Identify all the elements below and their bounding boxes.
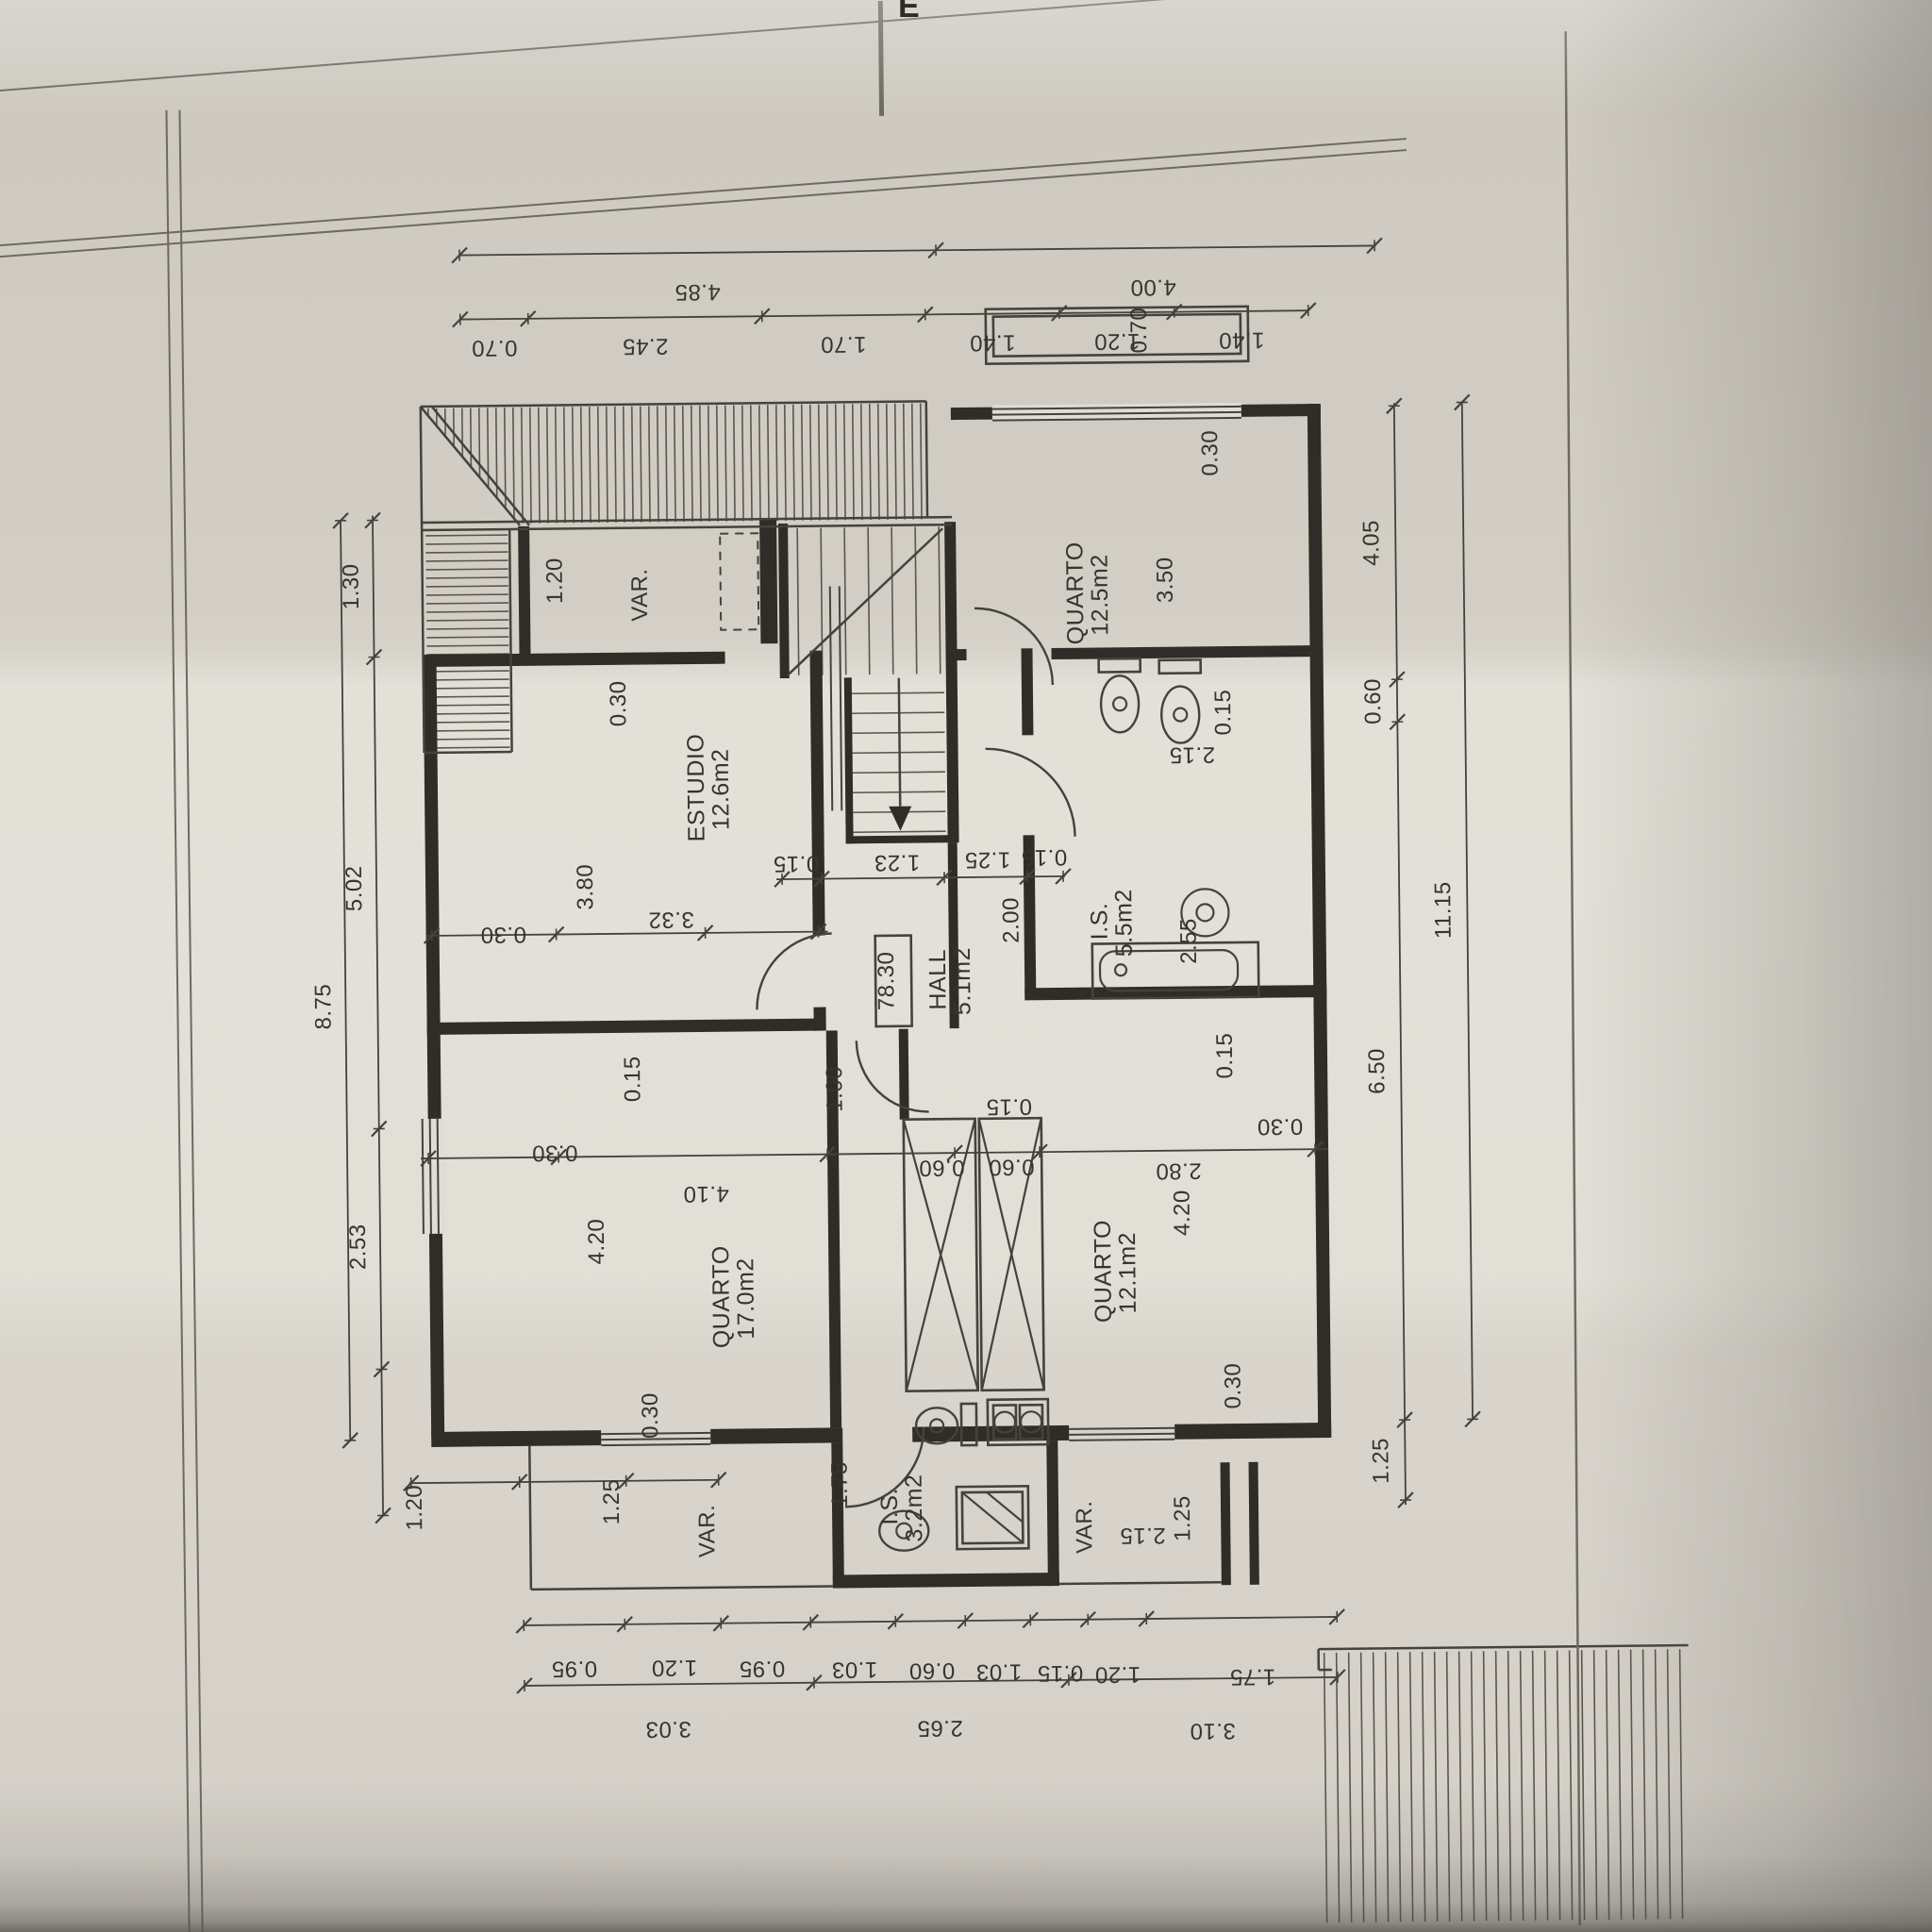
window-sill-line [438, 1119, 439, 1234]
hatch-line [649, 406, 650, 522]
hatch-line [607, 407, 608, 523]
hatch-line [590, 407, 591, 523]
dim-label: 0.95 [739, 1656, 785, 1682]
hatch-line [904, 404, 905, 520]
hatch-line [426, 569, 508, 570]
dimension-line [1462, 402, 1473, 1419]
dim-label: 1.75 [1229, 1664, 1275, 1690]
hatch-line [522, 408, 523, 524]
paper-fold-line [0, 150, 1407, 258]
room-name-label: QUARTO [1061, 541, 1089, 644]
hatch-line [426, 645, 508, 646]
dim-label: 11.15 [1430, 881, 1457, 939]
dim-label: 4.85 [675, 279, 721, 306]
dim-label: 0.15 [1212, 1033, 1239, 1079]
hatch-line [895, 404, 896, 520]
hatch-line [426, 577, 508, 578]
room-name-label: I.S. [1086, 903, 1112, 941]
hatch-line [853, 404, 854, 520]
hatch-line [615, 407, 616, 523]
plan-line [840, 586, 841, 810]
paper-fold-line [179, 110, 202, 1932]
plan-line [422, 517, 952, 523]
window-sill-line [423, 1119, 424, 1234]
stair-arrow-head [889, 807, 911, 831]
wall [1174, 1423, 1331, 1440]
window-sill-line [1069, 1428, 1174, 1429]
dim-label: 0.30 [480, 922, 526, 948]
dim-label: 2.55 [1175, 918, 1202, 964]
dimension-line [524, 1617, 1337, 1625]
hatch-line [427, 671, 509, 672]
wall [759, 519, 777, 643]
dim-label: 8.75 [310, 984, 337, 1030]
wall [1051, 645, 1309, 659]
plan-line [509, 529, 511, 752]
dim-label: 1.20 [541, 558, 568, 604]
dim-label: 1.03 [975, 1658, 1022, 1685]
dim-label: 2.53 [345, 1224, 372, 1270]
wall [1221, 1462, 1231, 1585]
hatch-line [426, 603, 508, 604]
hatch-line [479, 408, 480, 477]
dim-label: 4.10 [683, 1181, 729, 1207]
hatch-line [708, 406, 709, 522]
hatch-line [426, 594, 508, 595]
hatch-line [776, 405, 777, 521]
paper-bottom-shadow [0, 1781, 1932, 1932]
dim-label: 1.30 [338, 563, 364, 609]
dim-label: VAR. [627, 568, 654, 622]
hatch-line [427, 688, 509, 689]
dim-label: 2.80 [1156, 1158, 1202, 1184]
hatch-line [844, 527, 846, 675]
wall [431, 1430, 601, 1447]
hatch-line [854, 831, 946, 832]
wall [1249, 1462, 1259, 1585]
hatch-line [939, 526, 941, 674]
hatch-line [556, 408, 557, 524]
hatch-line [810, 405, 811, 521]
hatch-line [683, 406, 684, 522]
dim-label: 1.00 [822, 1066, 848, 1112]
dim-label: 1.20 [651, 1655, 697, 1681]
hatch-line [836, 404, 837, 520]
paper-fold-line [0, 139, 1407, 246]
dim-label: 1.03 [831, 1657, 877, 1683]
dim-label: 1.25 [1368, 1438, 1394, 1484]
sanitary-fixture [1101, 675, 1140, 732]
wall [427, 1019, 816, 1035]
window-sill-line [1069, 1434, 1174, 1435]
plan-line [830, 586, 832, 810]
hatch-line [658, 406, 658, 522]
wall [424, 655, 445, 1436]
plan-line [529, 1446, 531, 1590]
dim-label: 1.25 [599, 1478, 625, 1524]
dim-label: 0.70 [1126, 308, 1153, 354]
hatch-line [802, 405, 803, 521]
wall [944, 522, 959, 842]
hatch-line [581, 407, 582, 523]
dim-label: 78.30 [874, 951, 900, 1010]
wall [912, 1425, 1069, 1442]
hatch-line [426, 628, 508, 629]
dim-label: 3.32 [648, 907, 694, 933]
dim-label: 4.20 [1169, 1190, 1195, 1236]
dim-label: 2.00 [998, 897, 1024, 943]
hatch-line [861, 404, 862, 520]
room-area-label: 17.0m2 [732, 1257, 759, 1340]
dim-label: 0.95 [551, 1656, 597, 1682]
hatch-line [427, 722, 509, 723]
dim-label: 3.03 [645, 1716, 691, 1742]
dashed-opening [720, 533, 758, 629]
plan-line [1059, 1582, 1222, 1584]
hatch-line [425, 560, 508, 561]
dim-label: 1.40 [1219, 327, 1265, 354]
fixture-circle [1113, 697, 1126, 710]
hatch-line [513, 408, 514, 519]
hatch-line [844, 404, 845, 520]
wall [844, 677, 854, 843]
wall [1046, 1441, 1059, 1586]
hatch-line [530, 408, 531, 524]
dim-label: 0.30 [606, 680, 632, 726]
hatch-line [427, 705, 509, 706]
dim-label: 0.60 [989, 1154, 1035, 1180]
hatch-line [427, 739, 509, 740]
dim-label: 2.65 [917, 1715, 963, 1741]
hatch-line [819, 405, 820, 521]
hatch-line [700, 406, 701, 522]
hatch-line [797, 528, 799, 675]
plan-line [425, 752, 512, 753]
hatch-line [751, 405, 752, 521]
hatch-line [827, 405, 828, 521]
room-area-label: 12.5m2 [1086, 554, 1113, 636]
dimension-line [459, 245, 1374, 255]
dim-label: 1.20 [402, 1485, 428, 1531]
dim-label: 0.60 [1360, 678, 1387, 724]
dim-label: 2.45 [623, 333, 669, 359]
hatch-line [666, 406, 667, 522]
dim-label: 5.02 [341, 865, 368, 911]
dim-label: 6.50 [1364, 1048, 1391, 1094]
dimension-line [1394, 403, 1406, 1505]
fixture-circle [1115, 964, 1126, 975]
dim-label: 1.75 [826, 1461, 853, 1507]
hatch-line [675, 406, 675, 522]
hatch-line [426, 620, 508, 621]
dim-label: 0.15 [1210, 690, 1237, 736]
hatch-line [427, 679, 509, 680]
fixture-circle [1174, 708, 1187, 722]
hatch-line [426, 586, 508, 587]
hatch-line [427, 696, 509, 697]
dim-label: 3.50 [1152, 557, 1178, 603]
dim-label: 1.25 [1170, 1495, 1196, 1541]
wall [953, 649, 966, 660]
hatch-line [505, 408, 506, 508]
page-corner-letter: E [898, 0, 920, 25]
plan-line [899, 678, 900, 807]
dim-label: 1.70 [821, 331, 867, 358]
hatch-line [759, 405, 760, 521]
hatch-line [891, 527, 893, 675]
hatch-line [426, 637, 508, 638]
wall [813, 1008, 825, 1031]
dim-label: 0.15 [1021, 844, 1067, 871]
hatch-line [427, 713, 509, 714]
hatch-line [793, 405, 794, 521]
hatch-line [915, 527, 917, 675]
dim-label: 0.30 [1197, 430, 1224, 476]
window-sill-line [430, 1119, 431, 1234]
room-name-label: HALL [924, 949, 952, 1010]
hatch-line [691, 406, 692, 522]
dim-label: 4.20 [584, 1219, 610, 1265]
dim-label: 0.30 [1257, 1113, 1303, 1140]
dim-label: 2.15 [1169, 741, 1215, 768]
room-name-label: QUARTO [1090, 1220, 1117, 1323]
fixture-rect [1159, 659, 1201, 673]
plan-line [421, 407, 425, 753]
hatch-line [425, 543, 508, 544]
hatch-line [912, 404, 913, 520]
dim-label: VAR. [694, 1505, 721, 1558]
hatch-line [471, 408, 472, 468]
hatch-line [539, 408, 540, 524]
hatch-line [427, 730, 509, 731]
plan-line [421, 401, 926, 407]
dim-label: 0.60 [908, 1657, 955, 1684]
hatch-line [734, 406, 735, 522]
wall [710, 1427, 842, 1443]
door-swing-arc [986, 748, 1075, 838]
hatch-line [598, 407, 599, 523]
dim-label: 0.30 [532, 1140, 578, 1166]
window-opening [421, 1119, 446, 1234]
wall [809, 651, 824, 936]
hatch-line [641, 407, 641, 523]
hatch-line [547, 408, 548, 524]
room-area-label: 12.6m2 [708, 748, 735, 830]
paper-fold-line [166, 110, 189, 1932]
dim-label: 0.15 [620, 1056, 646, 1102]
plan-line [422, 525, 952, 530]
floor-plan-photo: 4.854.000.702.451.701.401.201.400.700.30… [0, 0, 1932, 1932]
hatch-line [425, 535, 508, 536]
room-area-label: 5.5m2 [1110, 889, 1138, 957]
wall [778, 524, 790, 678]
wall [1307, 404, 1331, 1436]
plan-line [531, 1587, 833, 1590]
hatch-line [428, 747, 510, 748]
hatch-line [868, 527, 870, 675]
fixture-rect [1099, 658, 1141, 672]
dim-label: 4.00 [1130, 275, 1176, 301]
hatch-line [425, 552, 508, 553]
plan-line [432, 406, 529, 526]
dim-label: 2.15 [1120, 1523, 1166, 1549]
dim-label: 0.30 [638, 1392, 664, 1439]
wall [833, 1573, 1059, 1589]
hatch-line [768, 405, 769, 521]
dimension-line [373, 516, 383, 1516]
plan-line [926, 401, 927, 517]
dim-label: 1.40 [970, 329, 1016, 356]
window-sill-line [601, 1444, 710, 1445]
hatch-line [632, 407, 633, 523]
dim-label: 1.25 [964, 847, 1010, 874]
hatch-line [887, 404, 888, 520]
paper-right-shadow [1574, 0, 1932, 1932]
hatch-line [564, 407, 565, 523]
room-area-label: 3.2m2 [901, 1474, 928, 1541]
hatch-line [624, 407, 625, 523]
room-name-label: QUARTO [708, 1245, 735, 1348]
dim-label: 1.23 [874, 850, 920, 876]
wall [1021, 648, 1033, 735]
dim-label: 1.20 [1094, 1661, 1141, 1688]
dim-label: VAR. [1072, 1500, 1098, 1554]
dim-label: 0.70 [472, 335, 518, 361]
window-sill-line [1069, 1440, 1174, 1441]
hatch-line [921, 403, 922, 519]
door-swing-arc [757, 933, 833, 1009]
wall [846, 835, 958, 843]
hatch-line [742, 405, 743, 521]
room-name-label: I.S. [876, 1488, 903, 1525]
hatch-line [426, 611, 508, 612]
dimension-line [341, 521, 350, 1441]
room-area-label: 12.1m2 [1114, 1232, 1141, 1314]
door-swing-arc [857, 1040, 929, 1112]
dim-label: 3.80 [573, 864, 599, 910]
hatch-line [725, 406, 726, 522]
hatch-line [870, 404, 871, 520]
room-area-label: 5.1m2 [949, 947, 976, 1015]
hatch-line [878, 404, 879, 520]
dim-label: 0.15 [986, 1093, 1032, 1120]
wall [518, 526, 530, 657]
hatch-line [573, 407, 574, 523]
dim-label: 0.30 [1220, 1363, 1246, 1409]
hatch-line [785, 405, 786, 521]
dim-label: 4.05 [1358, 520, 1385, 566]
door-swing-arc [974, 608, 1053, 686]
dim-label: 0.15 [1037, 1660, 1083, 1687]
dim-label: 0.15 [773, 851, 819, 877]
plan-line [962, 1491, 1024, 1543]
hatch-line [462, 408, 463, 458]
dimension-line [409, 1480, 719, 1483]
hatch-line [717, 406, 718, 522]
room-name-label: ESTUDIO [682, 734, 709, 842]
sanitary-fixture [1161, 686, 1200, 742]
plan-line [786, 528, 944, 675]
dim-label: 3.10 [1190, 1718, 1236, 1744]
dim-label: 0.60 [919, 1155, 965, 1181]
